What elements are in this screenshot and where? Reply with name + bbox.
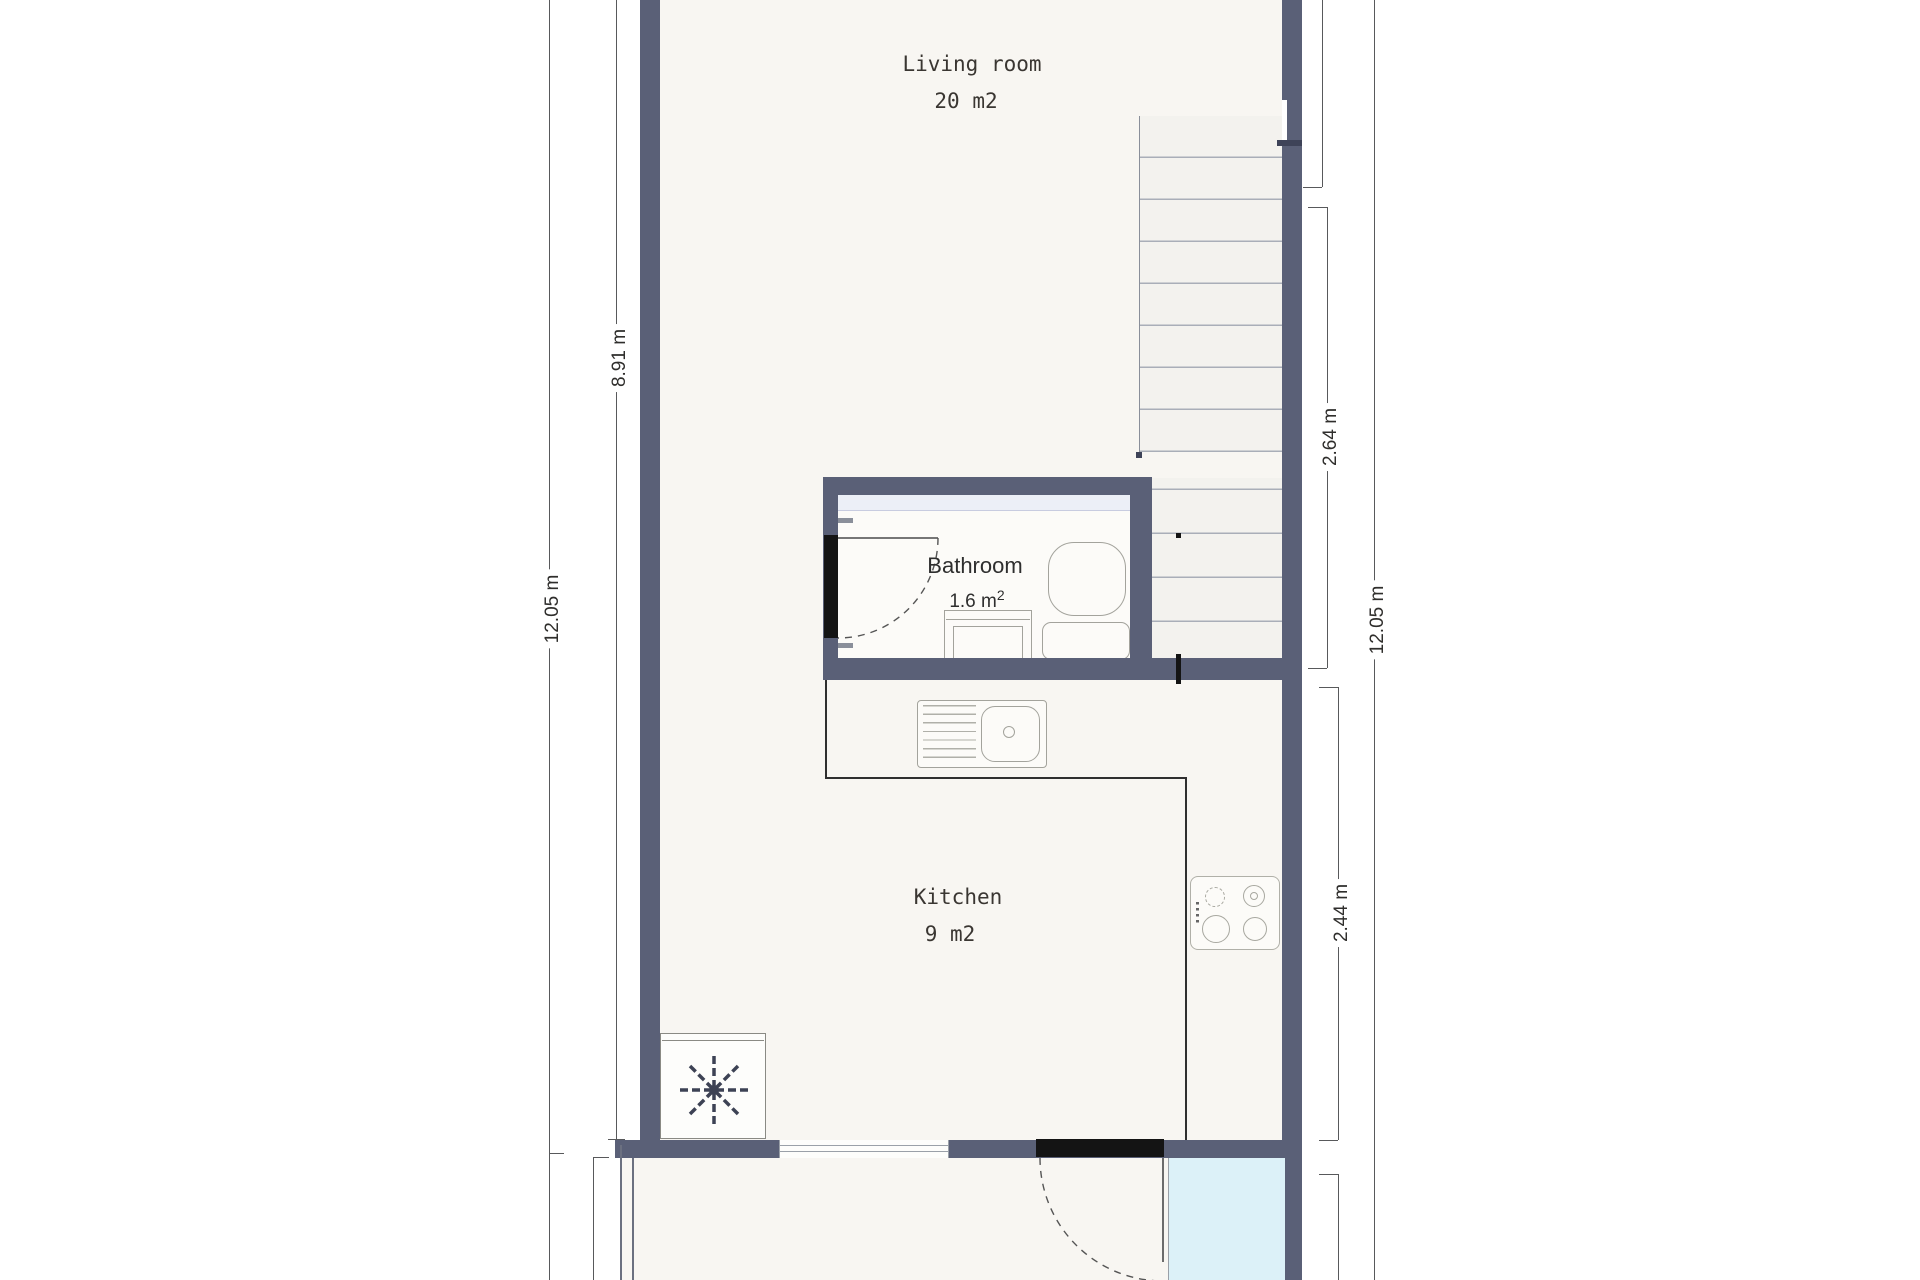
entrance-door: [1036, 1139, 1164, 1157]
bathroom-label: Bathroom: [927, 553, 1022, 579]
left-wall: [640, 0, 660, 1158]
freezer-inner-line: [662, 1040, 764, 1041]
stove-burner-bl: [1202, 915, 1230, 943]
bathroom-top-wall: [823, 477, 1152, 495]
kitchen-counter-line-right: [1185, 777, 1187, 1140]
staircase-lower-flight: [1152, 478, 1282, 658]
right-wall-notch: [1282, 100, 1287, 140]
bathroom-area-value: 1.6 m: [949, 591, 997, 612]
kitchen-counter-line-left: [825, 680, 827, 778]
living-room-area: 20 m2: [934, 89, 997, 113]
dim-tick-right-stairwell-top: [1308, 207, 1327, 208]
floor-plan: 12.05 m 8.91 m 2.64 m 2.44 m 12.05 m Liv…: [0, 0, 1920, 1280]
window-glass-line-1: [779, 1145, 949, 1146]
stove-burner-tr-inner: [1250, 892, 1258, 900]
stove: [1190, 876, 1280, 950]
dim-line-right-porch: [1338, 1174, 1339, 1280]
staircase: [1139, 116, 1282, 452]
kitchen-counter-line-bottom: [825, 777, 1186, 779]
toilet-bowl: [1048, 542, 1126, 616]
dim-line-porch: [593, 1157, 594, 1280]
dim-tick-right-kitchen-bottom: [1319, 1140, 1338, 1141]
dim-tick-porch: [593, 1157, 609, 1158]
kitchen-area: 9 m2: [925, 922, 976, 946]
living-room-label: Living room: [902, 52, 1041, 76]
right-wall: [1282, 0, 1302, 1158]
right-wall-tick: [1277, 140, 1302, 146]
dim-tick-right-top: [1303, 187, 1322, 188]
bathroom-doorframe-top: [838, 518, 853, 523]
stair-dot: [1176, 533, 1181, 538]
window: [779, 1140, 949, 1158]
dim-line-right-top: [1322, 0, 1323, 187]
stair-landing-tick: [1136, 452, 1142, 458]
dim-label-left-upper: 8.91 m: [607, 324, 633, 392]
dim-label-left-overall: 12.05 m: [540, 570, 566, 649]
toilet-tank: [1042, 622, 1130, 660]
porch-glazing: [620, 1145, 622, 1280]
window-glass-line-2: [779, 1151, 949, 1152]
kitchen-sink-drainboard: [923, 705, 976, 763]
dim-line-left-upper: [616, 0, 617, 1139]
dim-tick-right-porch: [1319, 1174, 1338, 1175]
dim-label-right-stairwell: 2.64 m: [1318, 403, 1344, 471]
bathroom-bottom-wall: [823, 658, 1302, 680]
bathroom-area: 1.6 m2: [949, 587, 1004, 613]
stove-burner-tl: [1205, 887, 1225, 907]
bathroom-sink-counter-line: [946, 619, 1030, 620]
counter-anchor-tick: [1176, 654, 1181, 684]
kitchen-sink-drain: [1003, 726, 1015, 738]
bathroom-wall-band: [838, 495, 1130, 511]
bathroom-right-wall: [1130, 477, 1152, 680]
porch-glazing-inner: [632, 1158, 634, 1280]
dim-tick-right-kitchen-top: [1319, 687, 1338, 688]
freezer: [660, 1033, 766, 1139]
bathroom-door: [824, 535, 838, 638]
stove-burner-br: [1243, 917, 1267, 941]
bottom-wall: [615, 1140, 1302, 1158]
porch-floor: [620, 1158, 1168, 1280]
dim-tick-left-overall: [549, 1153, 564, 1154]
porch-right-wall: [1285, 1158, 1302, 1280]
dim-label-right-overall: 12.05 m: [1365, 581, 1391, 660]
stove-controls: [1196, 902, 1199, 924]
bathroom-sink-basin: [953, 626, 1023, 660]
dim-tick-left-upper: [608, 1139, 625, 1140]
kitchen-label: Kitchen: [914, 885, 1003, 909]
porch-glass-panel: [1168, 1158, 1285, 1280]
dim-tick-right-stairwell-bottom: [1308, 668, 1327, 669]
dim-label-right-kitchen: 2.44 m: [1329, 879, 1355, 947]
bathroom-doorframe-bottom: [838, 643, 853, 648]
bathroom-area-sup: 2: [997, 587, 1005, 603]
